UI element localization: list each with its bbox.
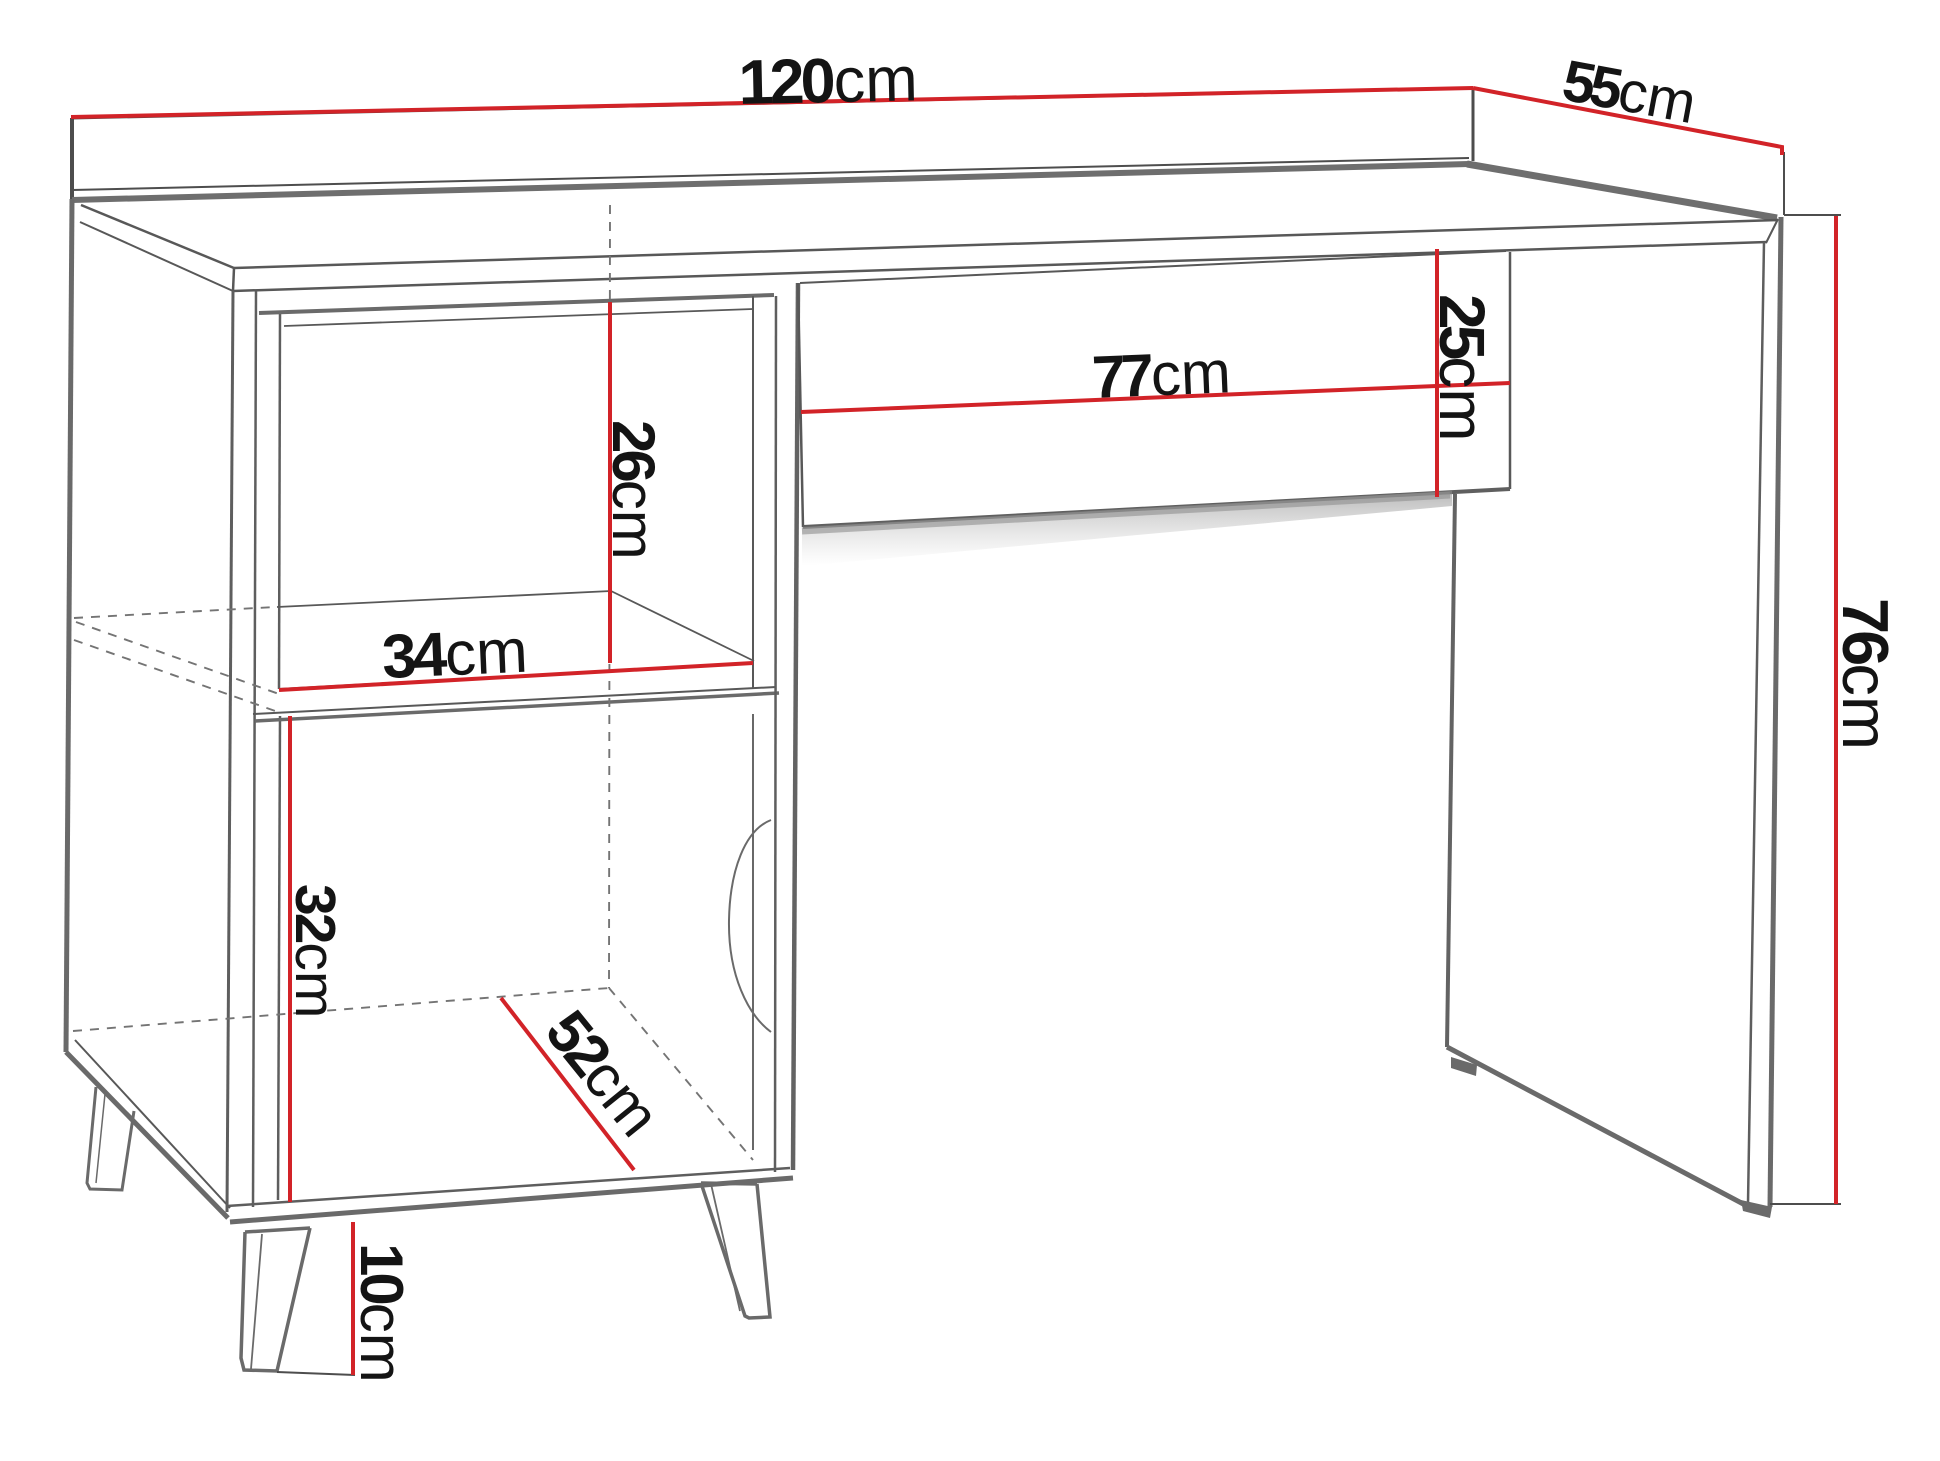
svg-text:120cm: 120cm [738,44,919,118]
svg-text:10cm: 10cm [348,1243,415,1383]
svg-text:26cm: 26cm [600,420,667,560]
svg-text:76cm: 76cm [1829,598,1902,750]
svg-text:77cm: 77cm [1091,338,1232,411]
svg-text:32cm: 32cm [283,884,347,1018]
svg-text:25cm: 25cm [1426,294,1498,442]
svg-text:34cm: 34cm [381,617,529,692]
